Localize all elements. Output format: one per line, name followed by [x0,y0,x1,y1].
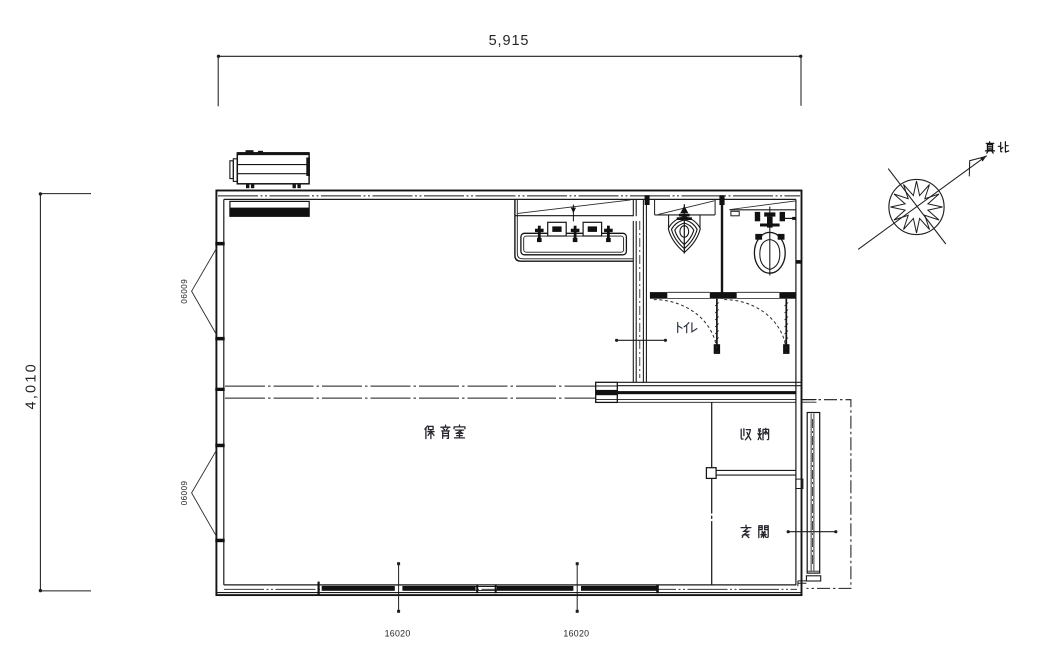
svg-text:06009: 06009 [180,480,189,505]
svg-text:5,915: 5,915 [489,33,530,49]
svg-text:4,010: 4,010 [24,362,40,409]
svg-text:16020: 16020 [385,629,411,639]
svg-text:16020: 16020 [563,629,589,639]
svg-text:06009: 06009 [180,279,189,304]
